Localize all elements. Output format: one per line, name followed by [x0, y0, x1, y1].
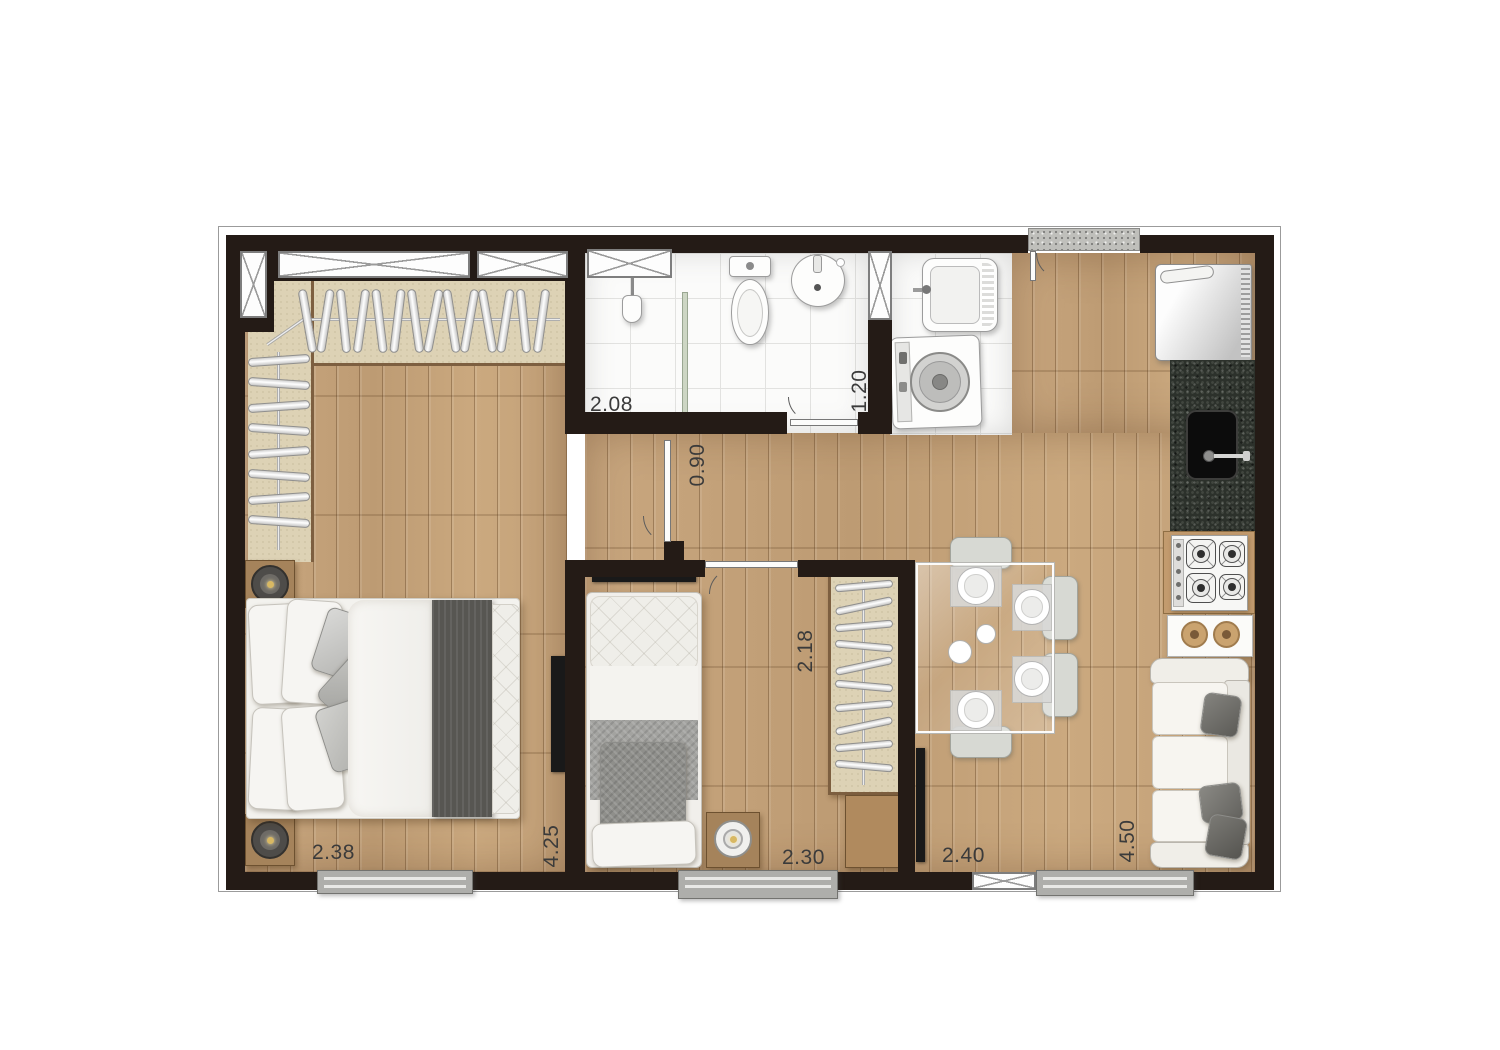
dimension-label: 2.30 [782, 846, 825, 870]
burner [1219, 574, 1245, 600]
toilet-flush-button [746, 262, 754, 270]
wall [1255, 235, 1274, 890]
hanger-icon [248, 469, 310, 482]
burner [1219, 541, 1245, 567]
hanger-icon [835, 739, 893, 752]
cooktop-knob [1176, 582, 1181, 587]
laundry-faucet-head [922, 285, 931, 294]
hanger-icon [835, 716, 893, 736]
dimension-label: 2.40 [942, 844, 985, 868]
dimension-label: 2.38 [312, 841, 355, 865]
hanger-icon [248, 446, 310, 459]
burner [1186, 573, 1216, 603]
sofa-pillow [1204, 813, 1249, 861]
door-leaf-entry [1030, 251, 1036, 281]
cooktop-knob [1176, 556, 1181, 561]
toilet-bowl-inner [737, 289, 763, 337]
hanger-icon [371, 289, 388, 354]
cooktop-knob [1176, 595, 1181, 600]
single-bed-pillow [590, 596, 698, 670]
hanger-icon [835, 579, 893, 592]
wall-bedroom2 [565, 560, 705, 577]
kitchen-faucet-tip [1243, 451, 1250, 461]
hanger-icon [248, 492, 310, 505]
hanger-icon [407, 289, 425, 354]
washing-machine-knob [899, 352, 907, 364]
entry-threshold [1028, 228, 1140, 251]
washing-machine-knob [899, 382, 907, 392]
kitchen-sink [1186, 410, 1238, 480]
tv [916, 748, 925, 862]
hanger-icon [835, 639, 893, 652]
dimension-label: 2.18 [794, 623, 818, 679]
hanger-icon [835, 679, 893, 692]
bed-duvet [348, 600, 434, 817]
refrigerator-grille [1241, 268, 1250, 357]
wall-divider [565, 560, 585, 872]
window [278, 251, 470, 278]
hanger-icon [478, 289, 498, 354]
centerpiece [948, 640, 972, 664]
wardrobe-hangers [833, 582, 897, 787]
plate [957, 691, 995, 729]
sliding-door-sill [1036, 870, 1194, 896]
laundry-tub-ribs [982, 263, 994, 327]
wall-stub [664, 541, 684, 562]
floor-plan: 2.08 1.20 0.90 2.18 2.38 4.25 2.30 2.40 … [0, 0, 1500, 1050]
hanger-icon [496, 289, 515, 354]
hanger-icon [389, 289, 406, 354]
window-vertical [240, 251, 267, 318]
window-sill [317, 870, 473, 894]
sofa-seat [1152, 736, 1228, 789]
bowl-center [1190, 630, 1199, 639]
single-bed-sheet [590, 666, 698, 724]
window-small [972, 872, 1036, 890]
door-leaf-bathroom [790, 419, 858, 426]
hanger-icon [442, 289, 461, 354]
door-leaf-bedroom2 [705, 561, 798, 568]
bowl-center [1222, 630, 1231, 639]
window-sill [678, 870, 838, 899]
hanger-icon [423, 289, 444, 354]
kitchen-faucet-arm [1214, 454, 1246, 458]
plate [957, 567, 995, 605]
bed-runner [432, 600, 492, 817]
dimension-label: 4.50 [1116, 813, 1140, 869]
desk [845, 795, 902, 868]
plate [1014, 661, 1050, 697]
wall [473, 872, 680, 890]
closet-hangers-left [246, 356, 312, 536]
wall [1140, 235, 1274, 253]
plate [1014, 589, 1050, 625]
centerpiece [976, 624, 996, 644]
soap-dish [836, 258, 845, 267]
shower-glass-divider [682, 292, 688, 430]
hanger-icon [835, 596, 893, 616]
dimension-label: 0.90 [686, 437, 710, 493]
dimension-label: 1.20 [848, 363, 872, 419]
dimension-label: 2.08 [590, 393, 633, 417]
wall-divider [898, 560, 915, 872]
washbasin-faucet [813, 255, 822, 273]
hanger-icon [835, 699, 893, 712]
window [587, 249, 672, 278]
bed-folded-quilt [492, 604, 520, 814]
hanger-icon [248, 515, 310, 528]
cooktop-knob [1176, 569, 1181, 574]
hanger-icon [316, 289, 335, 354]
dimension-label: 4.25 [540, 818, 564, 874]
burner [1186, 539, 1216, 569]
side-cabinet [1167, 615, 1253, 657]
wall [838, 872, 973, 890]
hanger-icon [248, 423, 310, 436]
washbasin-drain [814, 284, 821, 291]
lamp [251, 821, 289, 859]
hanger-icon [835, 656, 893, 676]
wall-bathroom [565, 253, 585, 434]
hanger-icon [248, 377, 310, 390]
wall-bedroom2 [798, 560, 913, 577]
washing-machine-drum-center [932, 374, 948, 390]
window-vertical [868, 251, 892, 320]
closet-hangers-top [303, 287, 563, 357]
hanger-icon [835, 619, 893, 632]
tv [551, 656, 565, 772]
hanger-icon [248, 354, 310, 367]
wall [226, 872, 317, 890]
hanger-icon [353, 289, 371, 354]
lamp-center [723, 829, 743, 849]
hanger-icon [460, 289, 480, 354]
shower-head [622, 295, 642, 323]
wall [1193, 872, 1274, 890]
hanger-icon [516, 289, 532, 354]
single-bed-pillow [591, 820, 696, 868]
hanger-icon [336, 289, 352, 354]
hanger-icon [248, 400, 310, 413]
hanger-icon [533, 289, 551, 354]
window [477, 251, 568, 278]
sofa-pillow [1199, 692, 1242, 739]
wall [226, 235, 245, 890]
hanger-icon [835, 759, 893, 772]
cooktop-knob [1176, 543, 1181, 548]
laundry-tub-bowl [930, 266, 980, 324]
